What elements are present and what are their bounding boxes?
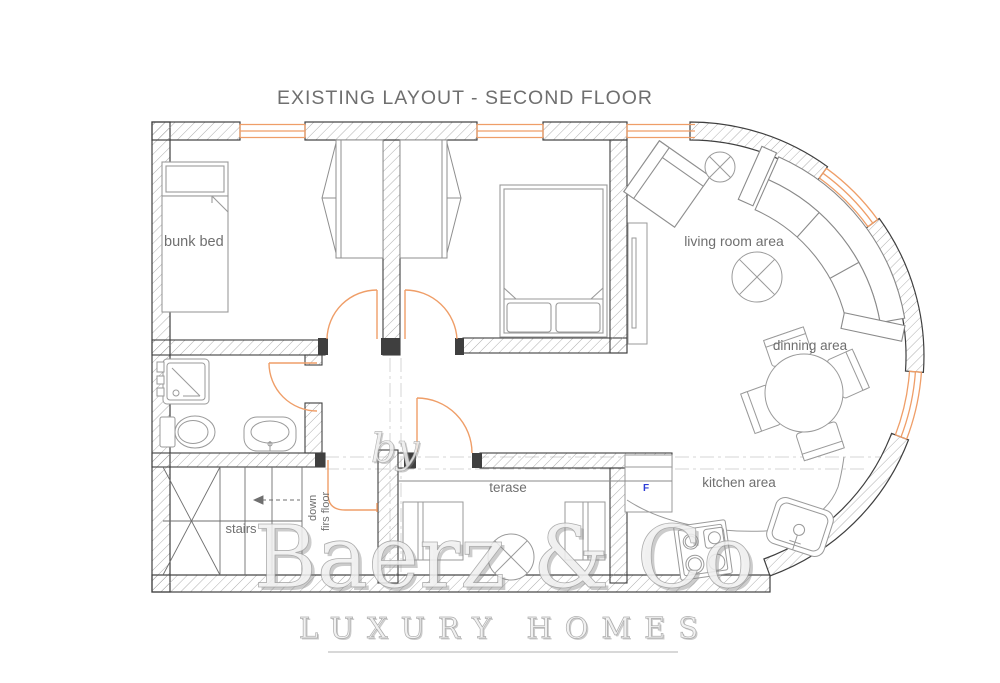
page-title: EXISTING LAYOUT - SECOND FLOOR (277, 87, 653, 109)
armchair (624, 141, 710, 227)
fridge-marker: F (643, 483, 649, 494)
toilet (160, 416, 215, 448)
bunk-bed-mattress (162, 196, 228, 312)
door-stairs (328, 460, 377, 512)
terrace-label: terase (489, 480, 527, 495)
dining-label: dinning area (773, 338, 848, 353)
watermark-brand: Baerz & Co Baerz & Co (254, 508, 758, 611)
bathroom (157, 359, 296, 451)
window-top-2 (477, 125, 543, 138)
shower (157, 359, 209, 404)
pillow (556, 303, 600, 332)
door-terrace (417, 398, 472, 453)
watermark-by: by by (371, 426, 422, 474)
tv-console (628, 223, 647, 344)
dining-table (765, 354, 843, 432)
living-room-label: living room area (684, 233, 784, 249)
kitchen-sink (764, 495, 836, 559)
side-table-round (705, 152, 735, 182)
watermark-tagline: LUXURY HOMES LUXURY HOMES (299, 611, 713, 647)
svg-text:Baerz & Co: Baerz & Co (254, 508, 755, 608)
coffee-table-round (732, 252, 782, 302)
floor-plan-page: EXISTING LAYOUT - SECOND FLOOR (0, 0, 1000, 683)
window-curve-2 (895, 371, 921, 439)
floor-plan-drawing: EXISTING LAYOUT - SECOND FLOOR (0, 0, 1000, 683)
double-bed (500, 185, 607, 337)
door-bunk-room (327, 290, 377, 339)
pillow (507, 303, 551, 332)
svg-text:by: by (371, 426, 421, 472)
window-top-3 (627, 125, 695, 138)
wardrobe-right (400, 140, 461, 258)
bunk-bed-label: bunk bed (164, 234, 224, 250)
kitchen-label: kitchen area (702, 475, 776, 490)
wardrobe-left (322, 140, 383, 258)
stairs-direction-arrow (254, 496, 263, 504)
window-top-1 (240, 125, 305, 138)
door-bedroom-2 (405, 290, 457, 339)
bathroom-sink (244, 417, 296, 451)
svg-text:LUXURY HOMES: LUXURY HOMES (299, 611, 711, 645)
stairs-label: stairs (225, 521, 257, 536)
doors (269, 290, 472, 512)
